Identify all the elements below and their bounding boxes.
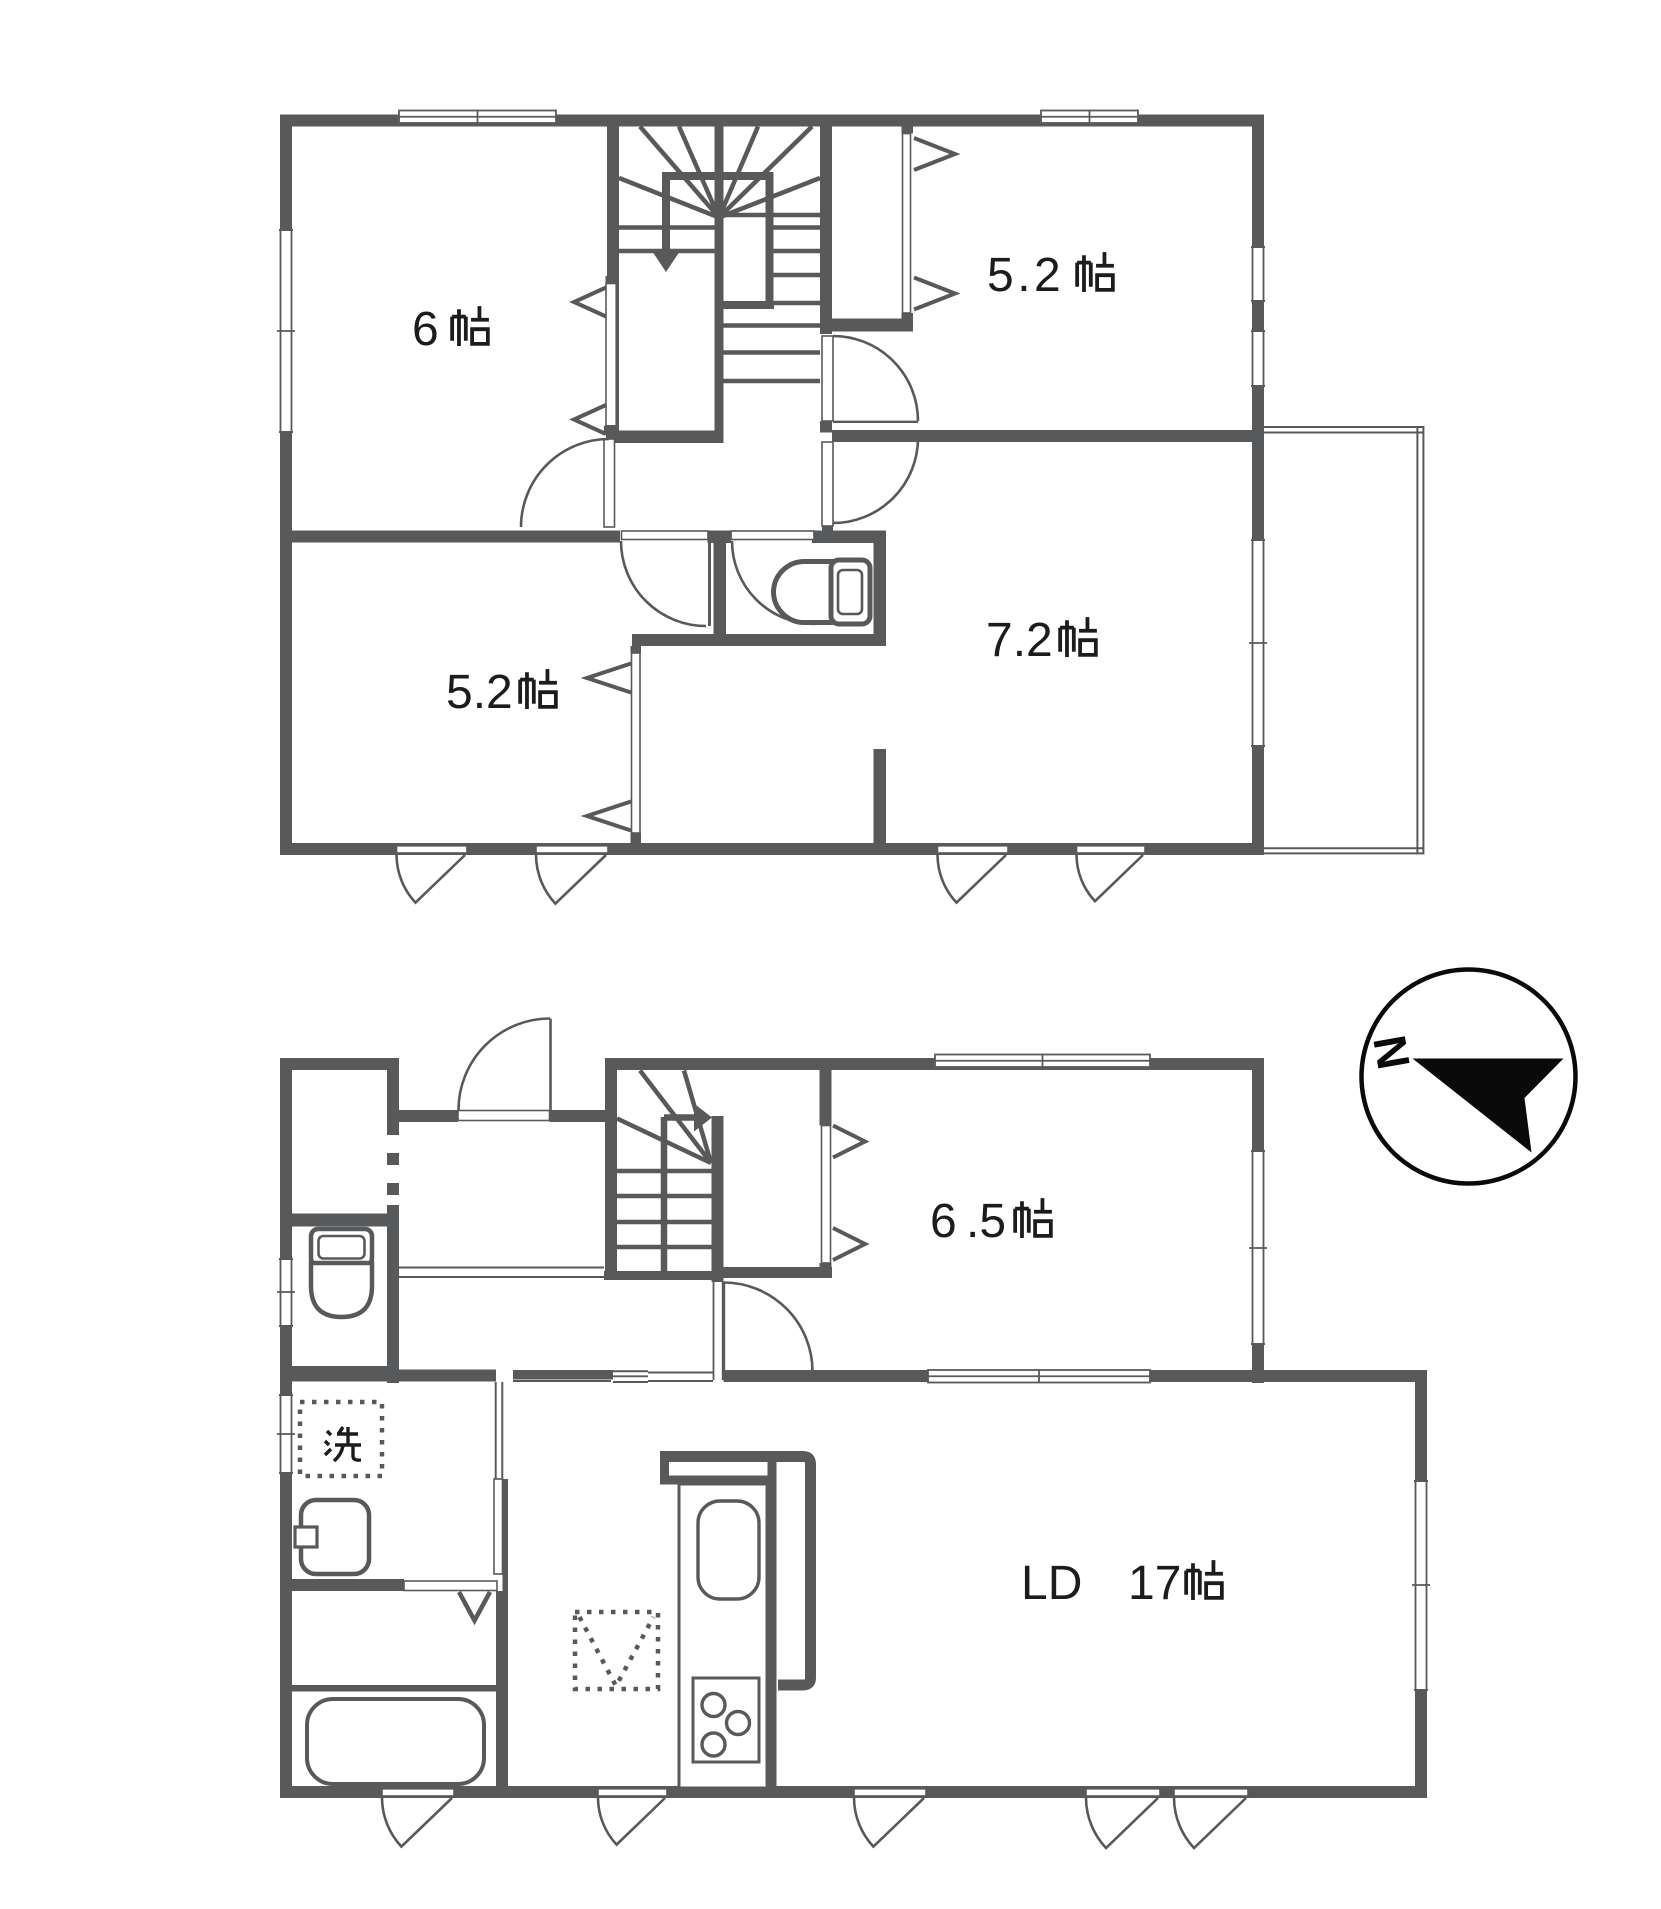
svg-text:5.2: 5.2: [446, 666, 513, 719]
svg-text:17: 17: [1128, 1557, 1181, 1610]
svg-text:5.2: 5.2: [987, 249, 1064, 302]
svg-text:6: 6: [412, 303, 439, 356]
svg-text:7.2: 7.2: [986, 614, 1053, 667]
svg-text:6: 6: [930, 1195, 957, 1248]
svg-text:.5: .5: [966, 1195, 1006, 1248]
svg-text:LD: LD: [1021, 1557, 1082, 1610]
